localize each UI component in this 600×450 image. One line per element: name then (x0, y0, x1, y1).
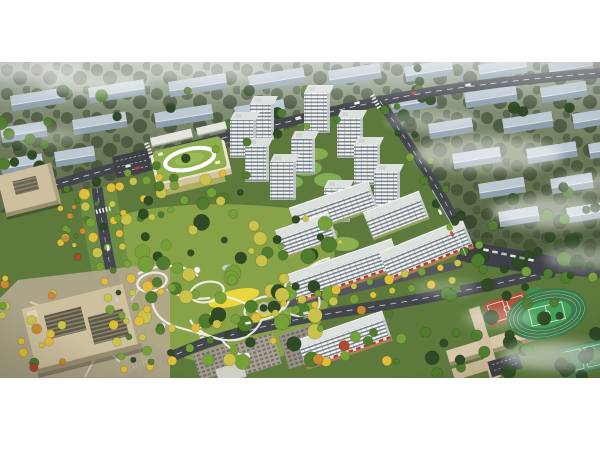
aerial-rendering (0, 62, 600, 378)
top-margin (0, 0, 600, 62)
page-background (0, 0, 600, 450)
bottom-margin (0, 378, 600, 450)
vignette (0, 62, 600, 378)
